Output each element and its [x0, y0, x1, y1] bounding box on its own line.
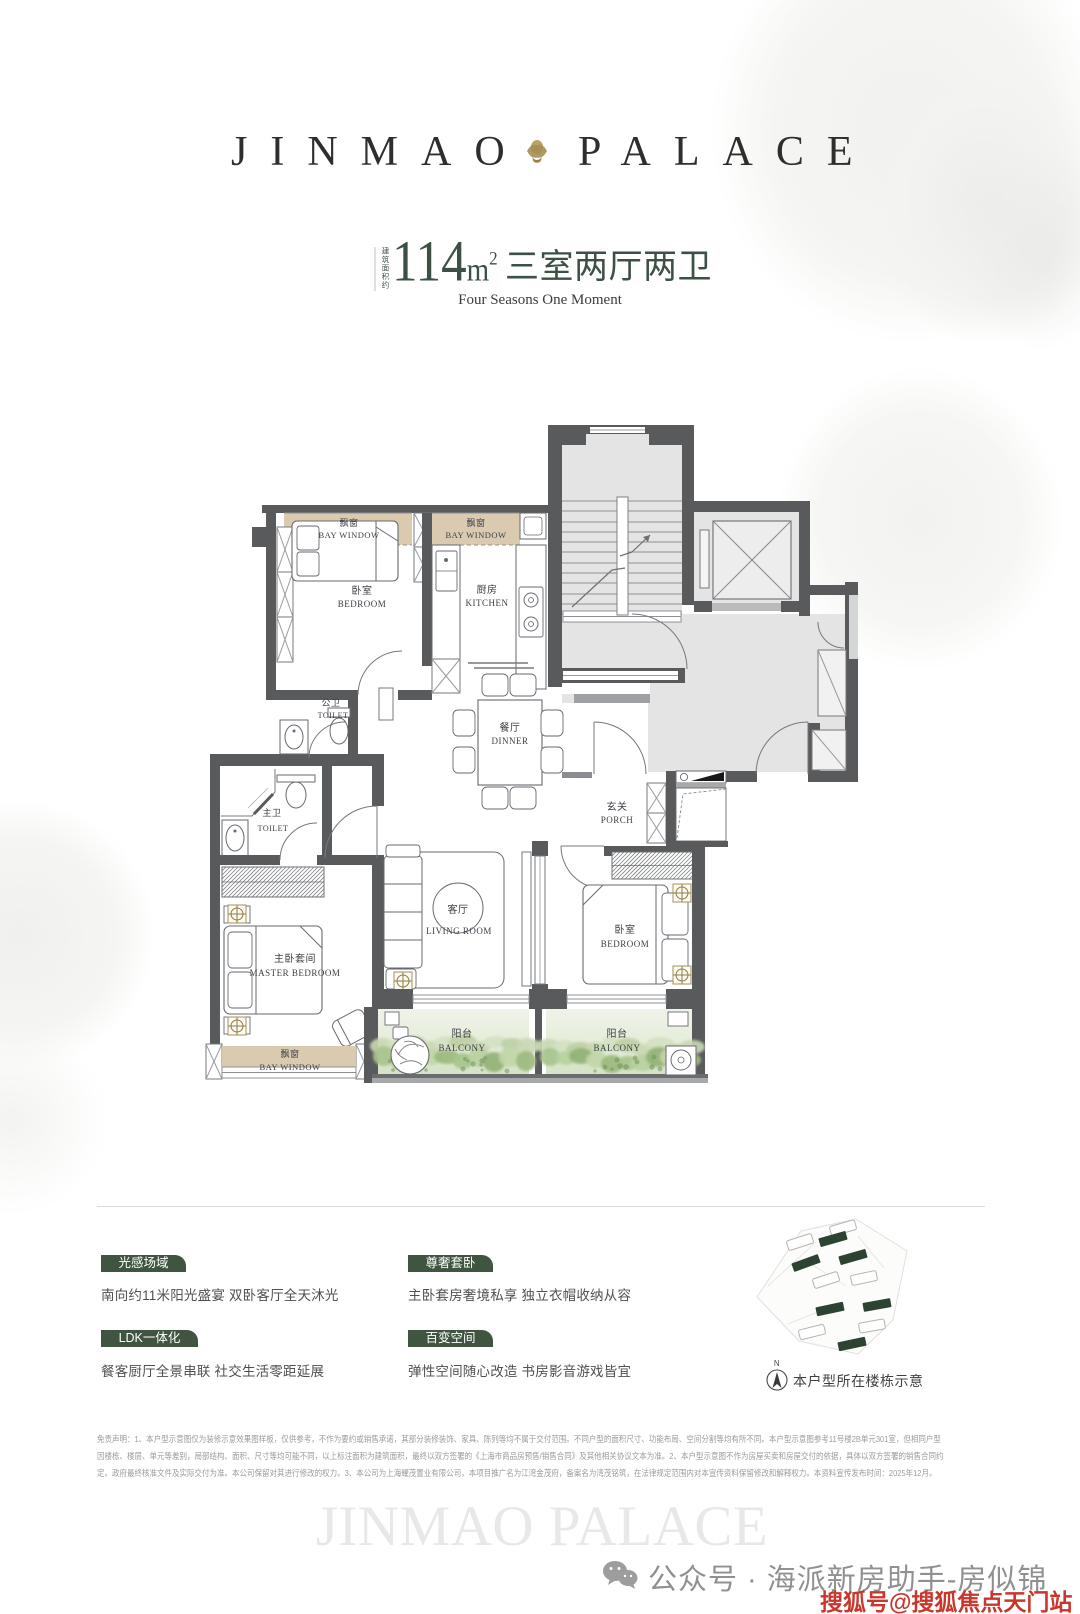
svg-text:TOILET: TOILET	[258, 824, 289, 833]
svg-text:N: N	[774, 1359, 780, 1368]
svg-text:餐厅: 餐厅	[500, 721, 521, 734]
svg-text:飘窗: 飘窗	[339, 517, 358, 528]
svg-text:客厅: 客厅	[448, 903, 469, 916]
svg-text:卧室: 卧室	[352, 584, 373, 597]
svg-text:MASTER BEDROOM: MASTER BEDROOM	[250, 968, 341, 978]
svg-text:TOILET: TOILET	[318, 711, 349, 720]
svg-text:KITCHEN: KITCHEN	[466, 598, 509, 608]
svg-text:主卫: 主卫	[262, 807, 281, 818]
svg-text:BEDROOM: BEDROOM	[601, 939, 650, 949]
svg-text:BAY WINDOW: BAY WINDOW	[259, 1062, 320, 1072]
svg-text:厨房: 厨房	[477, 583, 498, 596]
svg-text:BEDROOM: BEDROOM	[338, 599, 387, 609]
svg-text:BALCONY: BALCONY	[593, 1043, 640, 1053]
svg-text:PORCH: PORCH	[601, 815, 634, 825]
svg-text:DINNER: DINNER	[492, 736, 529, 746]
svg-text:主卧套间: 主卧套间	[274, 952, 316, 965]
svg-text:BAY WINDOW: BAY WINDOW	[445, 530, 506, 540]
svg-text:卧室: 卧室	[615, 923, 636, 936]
svg-text:阳台: 阳台	[452, 1027, 473, 1040]
svg-text:飘窗: 飘窗	[280, 1048, 299, 1059]
svg-text:阳台: 阳台	[607, 1027, 628, 1040]
svg-text:LIVING ROOM: LIVING ROOM	[426, 926, 492, 936]
svg-text:飘窗: 飘窗	[466, 517, 485, 528]
svg-text:公卫: 公卫	[321, 698, 340, 708]
svg-text:BALCONY: BALCONY	[438, 1043, 485, 1053]
svg-text:BAY WINDOW: BAY WINDOW	[318, 530, 379, 540]
svg-text:玄关: 玄关	[607, 800, 628, 813]
